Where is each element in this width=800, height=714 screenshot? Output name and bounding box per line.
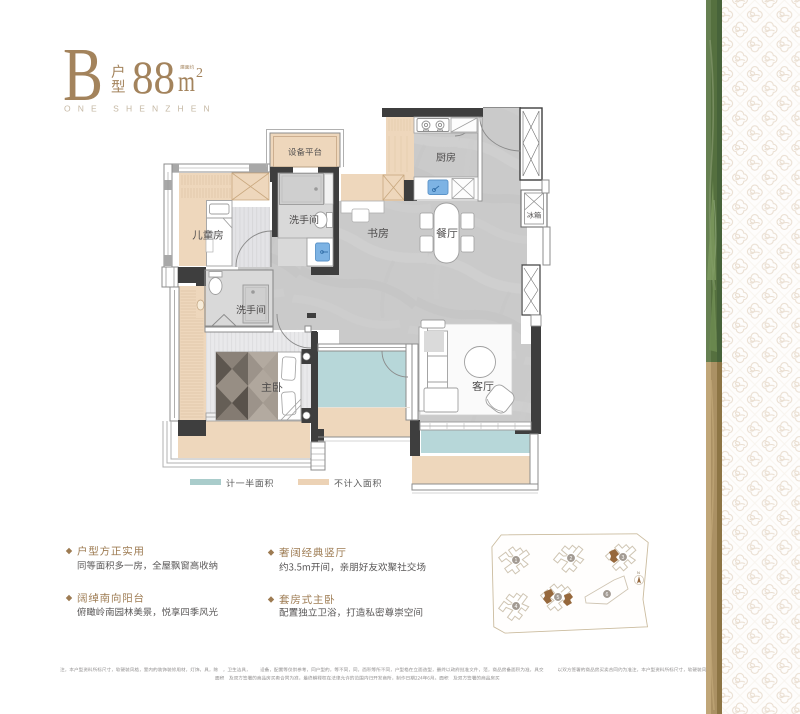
svg-text:4: 4: [515, 604, 518, 610]
svg-text:5: 5: [557, 595, 560, 601]
svg-text:2: 2: [196, 66, 203, 81]
svg-text:3: 3: [622, 555, 625, 561]
svg-text:6: 6: [606, 592, 609, 598]
svg-text:88: 88: [132, 52, 175, 104]
svg-text:1: 1: [515, 558, 518, 564]
svg-text:ONE SHENZHEN: ONE SHENZHEN: [64, 104, 217, 114]
svg-text:2: 2: [570, 556, 573, 562]
svg-text:m: m: [178, 65, 195, 98]
svg-text:N: N: [637, 570, 640, 575]
